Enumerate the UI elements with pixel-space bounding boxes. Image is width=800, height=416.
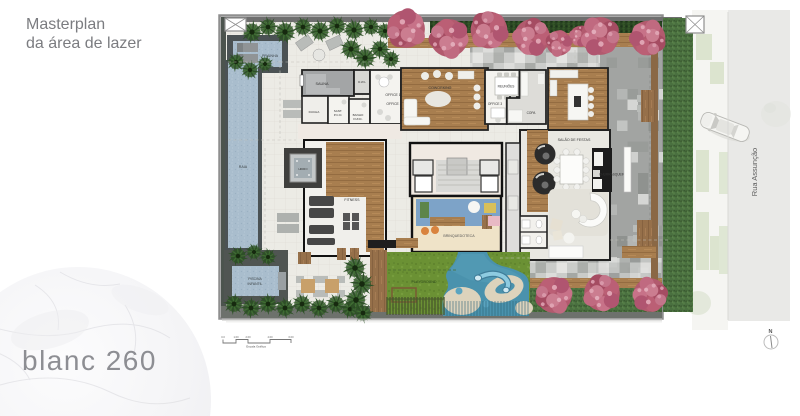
svg-text:OFFICE 3: OFFICE 3 [488,102,503,106]
svg-text:RAIA: RAIA [239,165,248,169]
svg-text:COPA: COPA [527,111,537,115]
svg-text:PISCINA: PISCINA [248,277,262,281]
svg-text:1.00: 1.00 [233,335,239,339]
svg-text:FITNESS: FITNESS [344,198,360,202]
svg-text:OFFICE 2: OFFICE 2 [386,102,401,106]
svg-text:blanc 260: blanc 260 [22,345,157,376]
svg-text:CHURRASQUEIRA: CHURRASQUEIRA [599,173,628,177]
svg-text:HIDRO: HIDRO [298,167,308,171]
svg-text:2.00: 2.00 [245,335,251,339]
svg-text:PLAYGROUND: PLAYGROUND [412,280,437,284]
svg-text:SALÃO DE FESTAS: SALÃO DE FESTAS [558,137,591,142]
svg-text:SAUNA: SAUNA [315,82,329,86]
svg-text:N: N [769,329,773,335]
svg-text:FUNC.: FUNC. [353,117,362,121]
svg-text:COWORKING: COWORKING [429,86,452,90]
svg-text:BRINQUEDOTECA: BRINQUEDOTECA [443,234,475,238]
svg-text:P.C.D.: P.C.D. [334,113,343,117]
svg-text:DUCHA: DUCHA [309,110,320,114]
svg-text:Escala Gráfica: Escala Gráfica [246,345,266,349]
svg-text:0.0: 0.0 [221,335,225,339]
svg-text:4.00: 4.00 [267,335,273,339]
svg-text:Rua Assunção: Rua Assunção [750,148,759,196]
svg-text:REUNIÕES: REUNIÕES [498,84,515,89]
svg-text:OFFICE 1: OFFICE 1 [385,93,400,97]
svg-text:D.W.L: D.W.L [358,80,366,84]
svg-text:da área de lazer: da área de lazer [26,35,142,52]
svg-text:INFANTIL: INFANTIL [248,282,263,286]
svg-text:Masterplan: Masterplan [26,16,105,33]
svg-text:6.00: 6.00 [288,335,294,339]
